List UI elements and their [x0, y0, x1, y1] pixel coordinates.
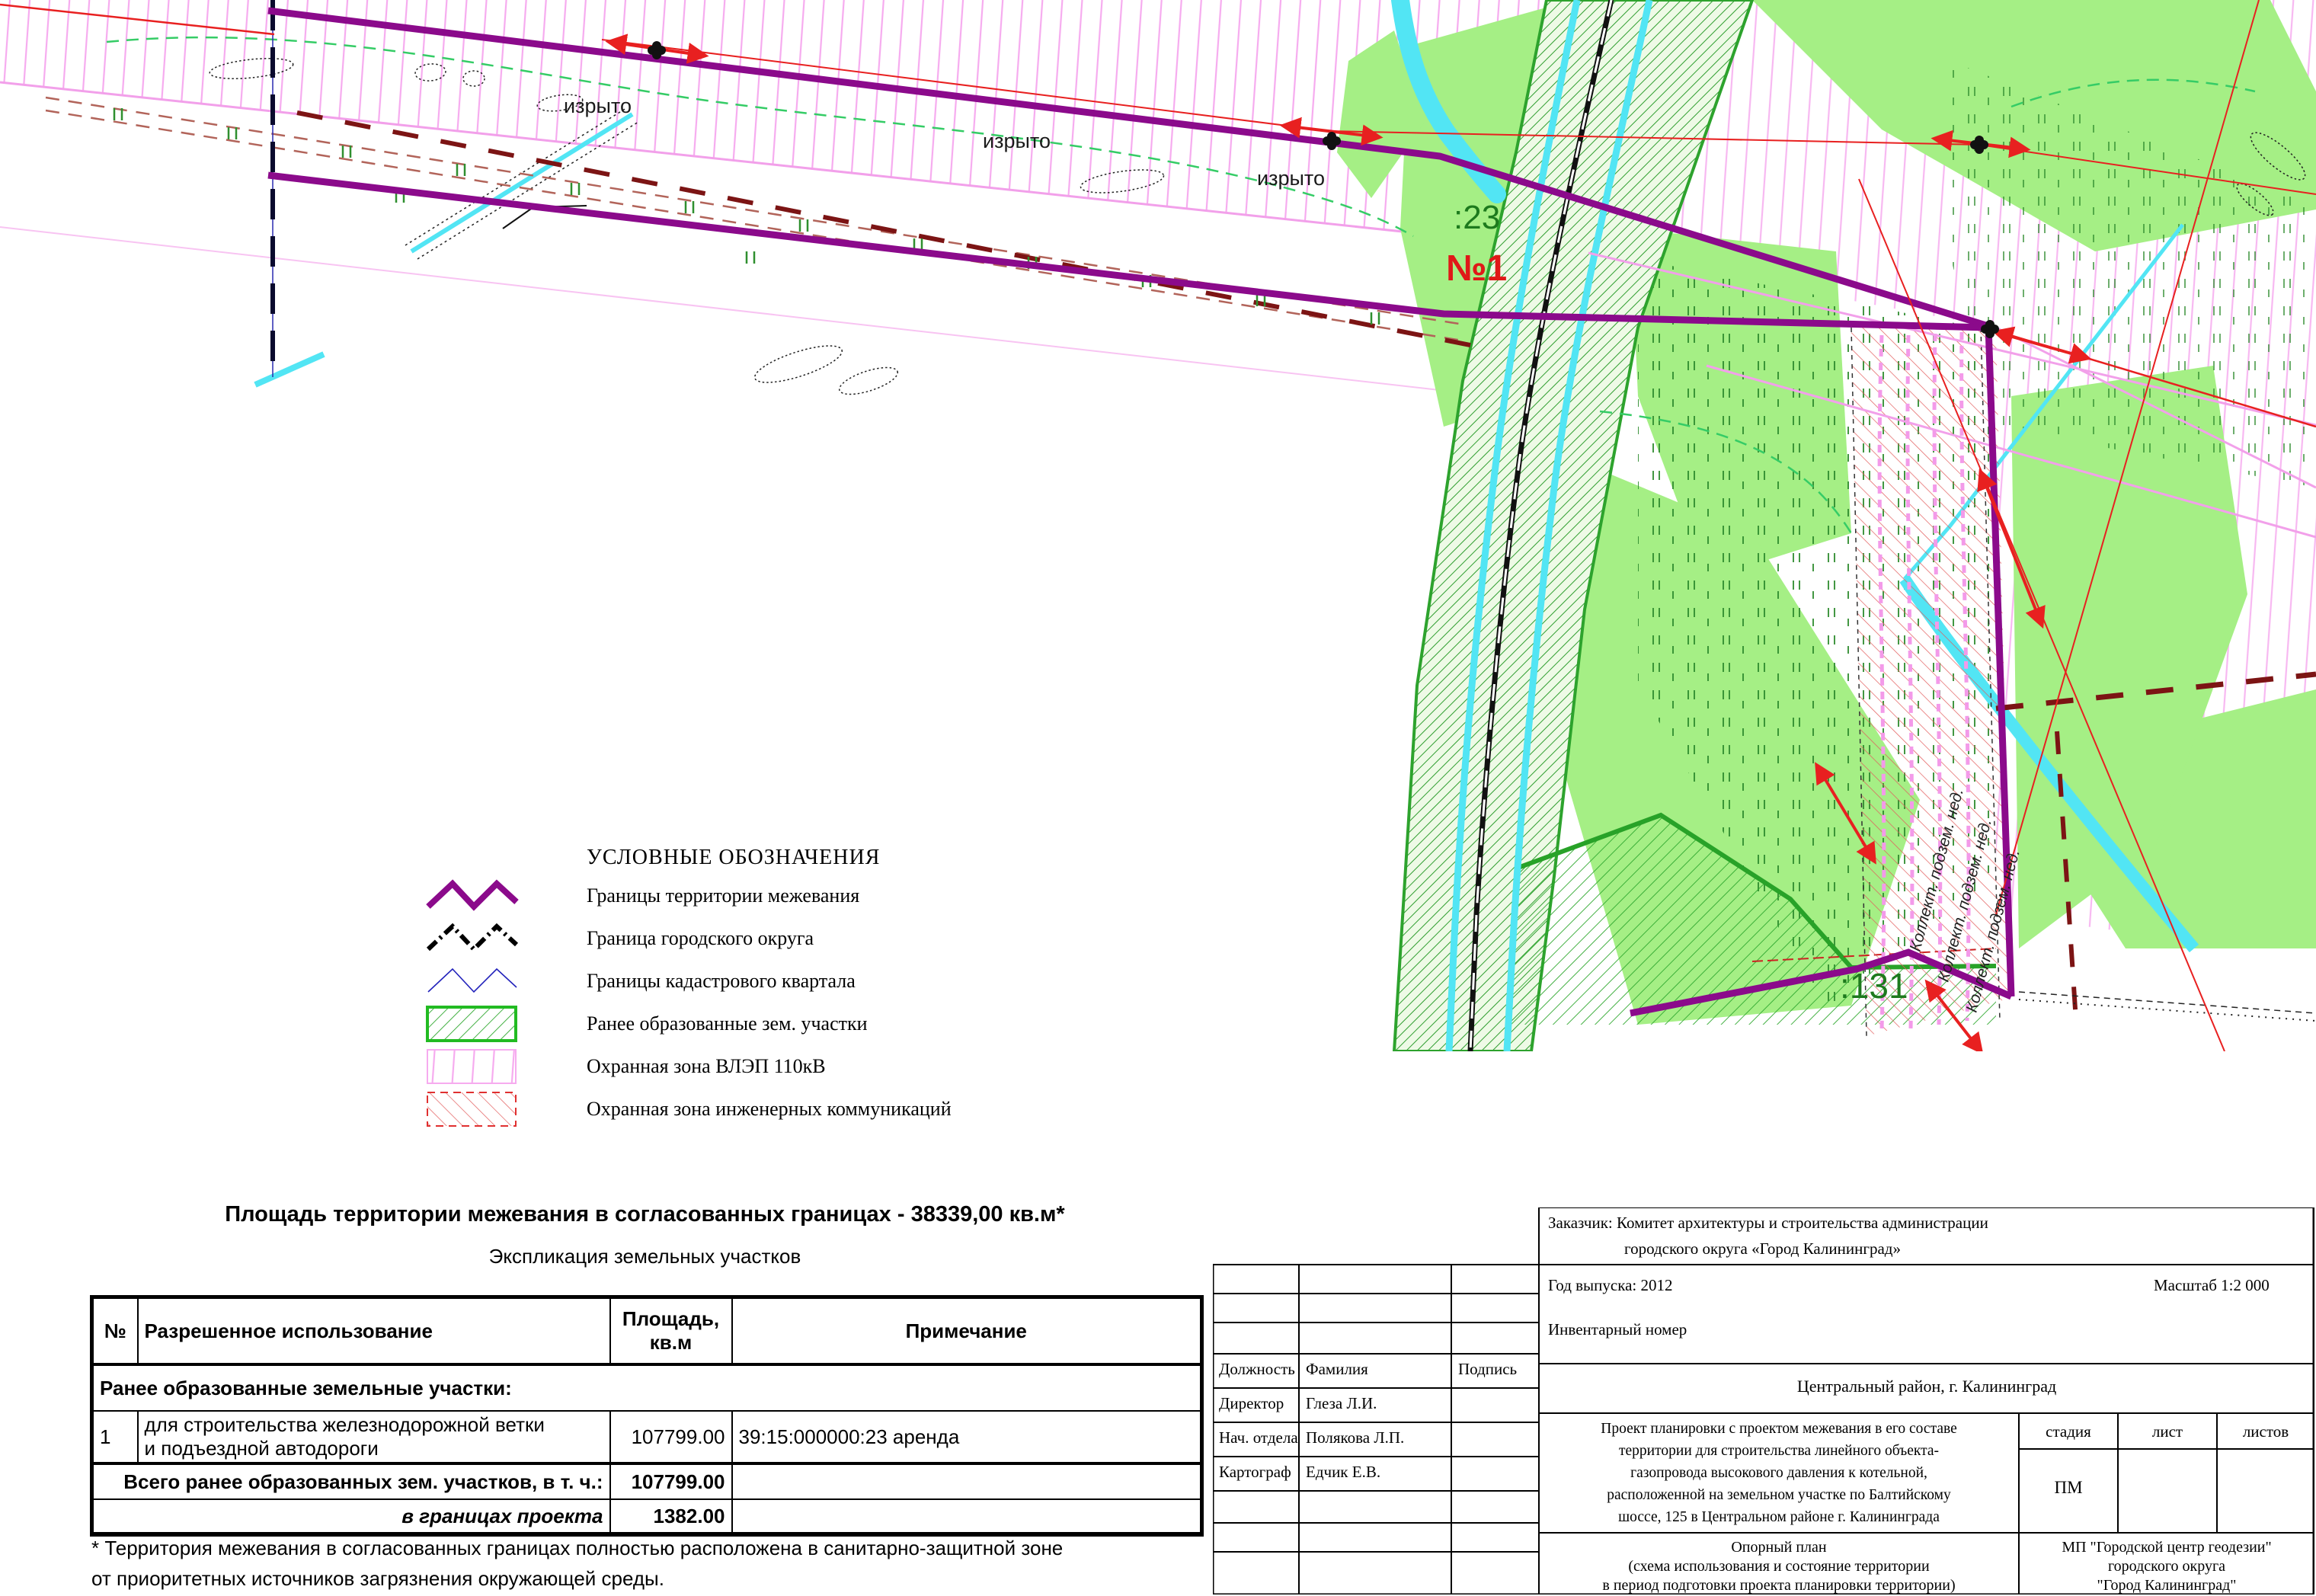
green-hatch-swatch-icon [425, 1003, 520, 1045]
col-surname: Фамилия [1306, 1360, 1368, 1379]
izryto-label-3: изрыто [1257, 167, 1325, 190]
table-row: 1 для строительства железнодорожной ветк… [92, 1411, 1202, 1463]
legend-item-territory: Границы территории межевания [424, 875, 1109, 917]
territory-zigzag-icon [425, 875, 520, 917]
legend-item-city-okrug: Граница городского округа [424, 917, 1109, 960]
legend-item-prior-parcels: Ранее образованные зем. участки [424, 1003, 1109, 1045]
col-position: Должность [1219, 1360, 1295, 1379]
survey-map: изрыто изрыто изрыто :23 №1 :131 Коллект… [0, 0, 2316, 1051]
person-surname: Глеза Л.И. [1306, 1394, 1377, 1413]
table-project-row: в границах проекта 1382.00 [92, 1499, 1202, 1534]
parcel-131-label: :131 [1840, 966, 1908, 1006]
inventory-number: Инвентарный номер [1548, 1320, 1687, 1339]
izryto-label-1: изрыто [564, 94, 632, 117]
area-summary-line: Площадь территории межевания в согласова… [90, 1202, 1200, 1227]
row-use: для строительства железнодорожной ветки … [138, 1411, 610, 1463]
organization: МП "Городской центр геодезии" городского… [2019, 1538, 2314, 1595]
title-block-grid [1213, 1207, 2314, 1594]
district-title: Центральный район, г. Калининград [1539, 1377, 2314, 1396]
stage-label: стадия [2019, 1422, 2118, 1441]
col-use: Разрешенное использование [138, 1297, 610, 1365]
sheet-label: лист [2118, 1422, 2217, 1441]
person-position: Нач. отдела [1219, 1428, 1298, 1447]
customer-line1: Заказчик: Комитет архитектуры и строител… [1548, 1214, 1988, 1233]
table-header-row: № Разрешенное использование Площадь, кв.… [92, 1297, 1202, 1365]
customer-line2: городского округа «Город Калининград» [1624, 1239, 1901, 1259]
legend-item-vlep-zone: Охранная зона ВЛЭП 110кВ [424, 1045, 1109, 1088]
col-area: Площадь, кв.м [610, 1297, 732, 1365]
explication-title: Экспликация земельных участков [90, 1245, 1200, 1268]
col-num: № [92, 1297, 138, 1365]
legend-title: УСЛОВНЫЕ ОБОЗНАЧЕНИЯ [587, 846, 880, 870]
person-surname: Полякова Л.П. [1306, 1428, 1404, 1447]
site-1-label: №1 [1446, 248, 1507, 289]
cadastral-zigzag-icon [425, 960, 520, 1003]
sheets-label: листов [2217, 1422, 2314, 1441]
table-section-row: Ранее образованные земельные участки: [92, 1364, 1202, 1411]
stage-value: ПМ [2019, 1478, 2118, 1498]
title-block: Заказчик: Комитет архитектуры и строител… [1213, 1207, 2314, 1594]
person-position: Картограф [1219, 1463, 1291, 1482]
person-position: Директор [1219, 1394, 1284, 1413]
person-surname: Едчик Е.В. [1306, 1463, 1380, 1482]
footpath-line [2019, 992, 2316, 1021]
legend: УСЛОВНЫЕ ОБОЗНАЧЕНИЯ Границы территории … [424, 838, 1109, 1143]
row-num: 1 [92, 1411, 138, 1463]
city-okrug-zigzag-icon [425, 917, 520, 960]
explication-table: № Разрешенное использование Площадь, кв.… [90, 1295, 1204, 1537]
row-note: 39:15:000000:23 аренда [732, 1411, 1202, 1463]
legend-item-cadastral-quarter: Границы кадастрового квартала [424, 960, 1109, 1003]
col-note: Примечание [732, 1297, 1202, 1365]
row-area: 107799.00 [610, 1411, 732, 1463]
red-hatch-swatch-icon [425, 1088, 520, 1131]
col-signature: Подпись [1458, 1360, 1517, 1379]
plan-title: Опорный план (схема использования и сост… [1539, 1538, 2019, 1595]
izryto-label-2: изрыто [983, 130, 1051, 152]
pink-hatch-swatch-icon [425, 1045, 520, 1088]
footnote: * Территория межевания в согласованных г… [91, 1533, 1204, 1594]
legend-item-eng-zone: Охранная зона инженерных коммуникаций [424, 1088, 1109, 1131]
map-scale: Масштаб 1:2 000 [2154, 1276, 2270, 1295]
project-title: Проект планировки с проектом межевания в… [1547, 1418, 2011, 1528]
parcel-23-label: :23 [1454, 199, 1500, 236]
table-total-row: Всего ранее образованных зем. участков, … [92, 1463, 1202, 1499]
issue-year: Год выпуска: 2012 [1548, 1276, 1673, 1295]
